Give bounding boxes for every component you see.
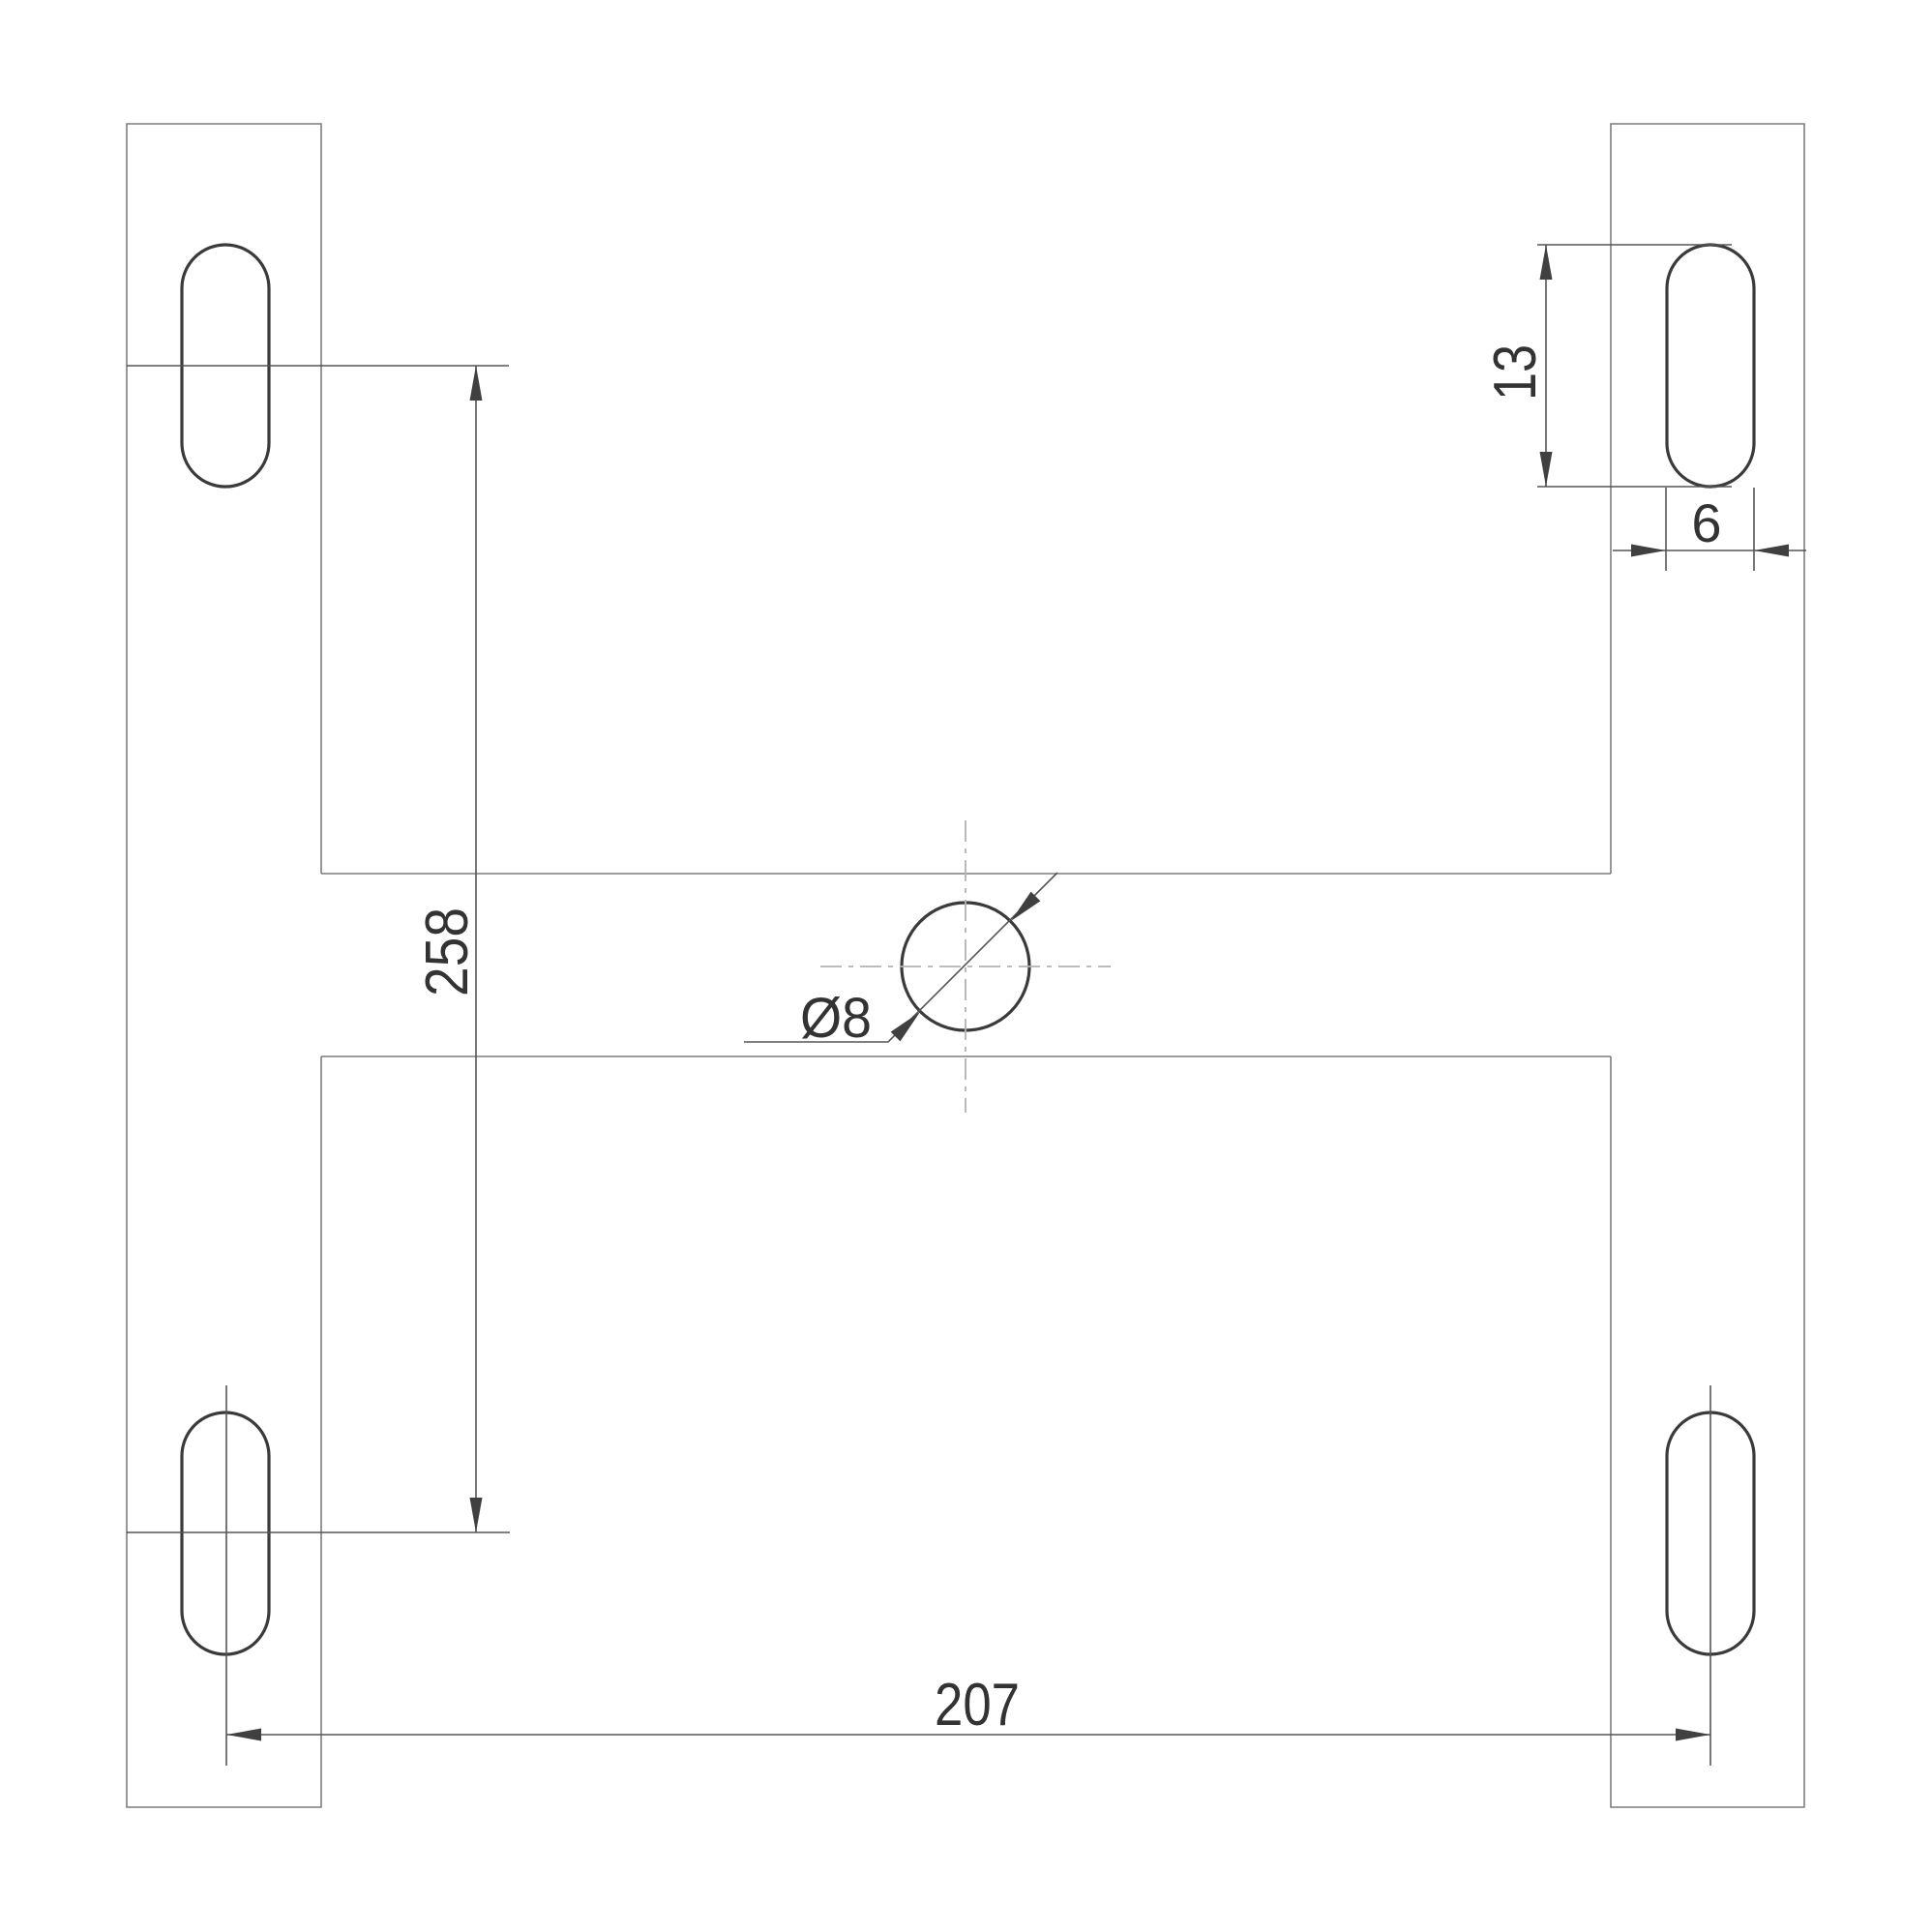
arrowhead-down [470, 1498, 483, 1532]
leader-line [744, 873, 1057, 1042]
right-tab-outline [1611, 124, 1804, 1807]
arrowhead-left [226, 1729, 261, 1741]
arrowhead-up [470, 366, 483, 401]
slot-bottom-left [182, 1412, 269, 1654]
dimension-slot-length: 13 [1482, 245, 1732, 487]
dimension-slot-vertical-spacing: 258 [127, 366, 510, 1532]
arrowhead-upper [1011, 892, 1040, 921]
drawing-canvas: 258 207 13 6 Ø8 [0, 0, 1932, 1932]
arrowhead-lower [891, 1012, 920, 1041]
arrowhead-inward-left [1754, 545, 1789, 557]
dim-label-258: 258 [414, 907, 481, 996]
dim-label-6: 6 [1691, 492, 1721, 553]
arrowhead-up [1540, 245, 1553, 280]
dimension-slot-horizontal-spacing: 207 [226, 1385, 1710, 1766]
arrowhead-inward-right [1631, 545, 1666, 557]
arrowhead-right [1676, 1729, 1710, 1741]
slot-top-right [1667, 245, 1754, 487]
arrowhead-down [1540, 452, 1553, 487]
center-hole-centerlines [820, 820, 1111, 1113]
dim-label-diameter: Ø8 [800, 987, 872, 1050]
dim-label-13: 13 [1482, 344, 1549, 401]
technical-drawing: 258 207 13 6 Ø8 [0, 0, 1932, 1932]
dimension-slot-width: 6 [1613, 488, 1806, 571]
dim-label-207: 207 [935, 1672, 1020, 1739]
left-tab-outline [127, 124, 321, 1807]
